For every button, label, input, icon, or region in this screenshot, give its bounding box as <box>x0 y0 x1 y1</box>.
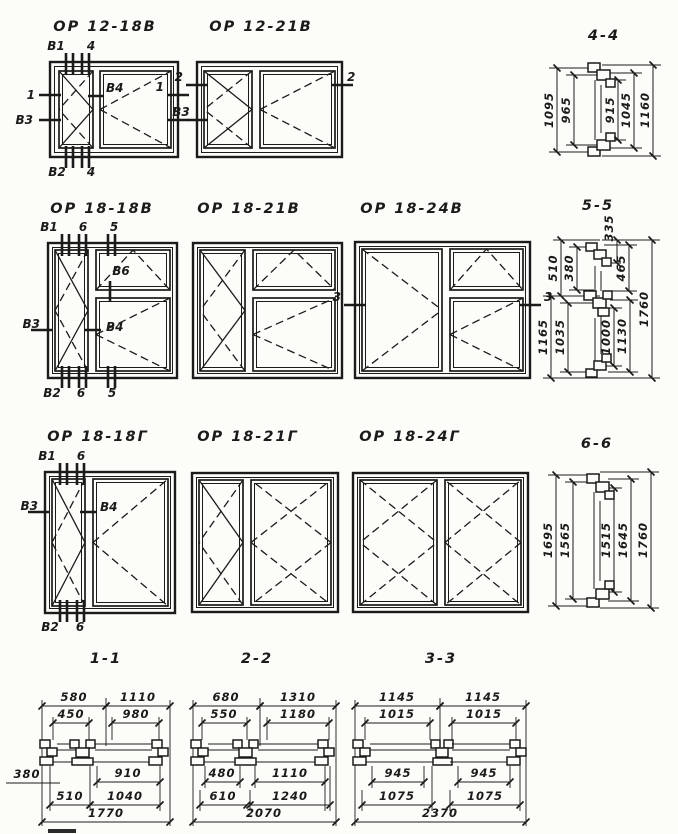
dim-label: 1110 <box>120 690 156 704</box>
window-title: ОР 12-21В <box>209 19 312 35</box>
mark-label: В1 <box>40 220 58 234</box>
window-frame <box>353 473 528 612</box>
window-frame <box>50 62 178 157</box>
section-2-2: 2-2 680 1310 550 1180 480 1110 610 1240 … <box>191 651 336 826</box>
mark-label: 5 <box>108 386 116 400</box>
dim-label: 1240 <box>272 789 308 803</box>
mark-label: В3 <box>16 113 34 127</box>
dim-label: 1180 <box>280 707 316 721</box>
dim-label: 915 <box>603 96 617 123</box>
dim-label: 1645 <box>616 522 630 558</box>
window-frame <box>192 473 338 612</box>
dim-label: 1565 <box>558 522 572 558</box>
dim-label: 980 <box>122 707 149 721</box>
dim-label: 910 <box>114 766 141 780</box>
opening-symbols <box>204 71 335 148</box>
mark-label: 4 <box>86 165 95 179</box>
dim-label: 510 <box>56 789 83 803</box>
window-or-12-21v: ОР 12-21В 2 2 <box>175 19 356 157</box>
mark-label: В3 <box>21 499 39 513</box>
dim-label: 2370 <box>422 806 458 820</box>
dim-label: 1165 <box>536 319 550 355</box>
section-title: 5-5 <box>582 198 614 214</box>
section-5-5: 5-5 335 510 380 465 1165 1035 1000 1130 … <box>536 198 660 378</box>
mark-label: В4 <box>100 500 118 514</box>
window-title: ОР 18-24В <box>360 201 463 217</box>
opening-symbols <box>200 250 335 371</box>
mark-label: В1 <box>38 449 56 463</box>
dim-label: 1145 <box>379 690 415 704</box>
dim-label: 380 <box>562 254 576 281</box>
window-title: ОР 18-18В <box>50 201 153 217</box>
mark-label: 6 <box>79 220 87 234</box>
window-title: ОР 18-24Г <box>359 429 461 445</box>
window-or-12-18v: ОР 12-18В В1 4 1 В3 1 В3 В2 4 В4 <box>16 19 190 179</box>
dim-label: 1015 <box>379 707 415 721</box>
window-frame <box>193 243 342 378</box>
dim-label: 965 <box>559 96 573 123</box>
mark-label: 1 <box>27 88 35 102</box>
dim-label: 550 <box>210 707 237 721</box>
window-types-drawing: ОР 12-18В В1 4 1 В3 1 В3 В2 4 В4 ОР 12-2… <box>0 0 678 834</box>
dim-label: 610 <box>209 789 236 803</box>
mark-label: 5 <box>110 220 118 234</box>
profiles <box>40 740 168 765</box>
section-title: 4-4 <box>587 28 620 44</box>
window-or-18-21g: ОР 18-21Г <box>192 429 338 612</box>
dim-label: 1695 <box>541 522 555 558</box>
mark-label: В3 <box>23 317 41 331</box>
dim-label: 680 <box>212 690 239 704</box>
window-frame <box>45 472 175 613</box>
mark-label: В2 <box>41 620 59 634</box>
section-title: 2-2 <box>241 651 273 667</box>
window-title: ОР 18-18Г <box>47 429 149 445</box>
section-title: 1-1 <box>90 651 122 667</box>
profiles <box>584 243 612 377</box>
dim-label: 1095 <box>542 92 556 128</box>
dim-label: 1310 <box>280 690 316 704</box>
dim-label: 1075 <box>467 789 503 803</box>
dim-label: 2070 <box>246 806 282 820</box>
dim-label: 1145 <box>465 690 501 704</box>
window-or-18-21v: ОР 18-21В <box>193 201 342 378</box>
section-4-4: 4-4 1095 965 915 1045 1160 <box>542 28 661 156</box>
section-3-3: 3-3 1145 1145 1015 1015 945 945 1075 107… <box>353 651 526 826</box>
dim-label: 510 <box>546 254 560 281</box>
window-or-18-24v: ОР 18-24В 3 3 <box>333 201 553 378</box>
dim-label: 1075 <box>379 789 415 803</box>
dim-label: 1110 <box>272 766 308 780</box>
section-ticks <box>31 234 115 388</box>
window-title: ОР 18-21В <box>197 201 300 217</box>
opening-symbols <box>360 480 521 605</box>
dim-label: 465 <box>614 254 628 282</box>
dim-label: 335 <box>602 214 616 241</box>
scan-artifact <box>48 829 76 833</box>
dim-label: 1515 <box>599 522 613 558</box>
dim-label: 1045 <box>619 92 633 128</box>
mark-label: В2 <box>43 386 61 400</box>
mark-label: В1 <box>47 39 65 53</box>
window-title: ОР 18-21Г <box>197 429 299 445</box>
mark-label: 3 <box>333 290 341 304</box>
mark-label: 6 <box>77 386 85 400</box>
dim-label: 1040 <box>107 789 143 803</box>
dim-label: 450 <box>56 707 84 721</box>
mark-label: 4 <box>86 39 95 53</box>
dim-label: 1760 <box>637 291 651 327</box>
mark-label: 1 <box>156 80 164 94</box>
opening-symbols <box>199 480 331 605</box>
dim-label: 945 <box>384 766 411 780</box>
dim-label: 945 <box>470 766 497 780</box>
dim-label: 1000 <box>599 319 613 355</box>
mark-label: В2 <box>48 165 66 179</box>
window-frame <box>197 62 342 157</box>
dim-label: 1770 <box>88 806 124 820</box>
dim-label: 1015 <box>466 707 502 721</box>
mark-label: 2 <box>175 70 183 84</box>
section-1-1: 1-1 580 1110 450 980 380 910 510 1040 17… <box>6 651 170 826</box>
mark-label: 6 <box>77 449 85 463</box>
profiles <box>191 740 334 765</box>
mark-label: В6 <box>112 264 130 278</box>
dim-label: 1760 <box>636 522 650 558</box>
section-title: 3-3 <box>425 651 457 667</box>
mark-label: В3 <box>172 105 190 119</box>
mark-label: В4 <box>106 81 124 95</box>
section-title: 6-6 <box>581 436 613 452</box>
blueprint-canvas: ОР 12-18В В1 4 1 В3 1 В3 В2 4 В4 ОР 12-2… <box>0 0 678 834</box>
window-frame <box>355 242 530 378</box>
section-6-6: 6-6 1695 1565 1515 1645 1760 <box>541 436 659 608</box>
dim-label: 580 <box>60 690 87 704</box>
window-or-18-18v: ОР 18-18В В1 6 5 В3 В4 В6 В2 6 5 <box>23 201 178 400</box>
window-or-18-18g: ОР 18-18Г В1 6 В3 В4 В2 6 <box>21 429 176 634</box>
dim-label: 1160 <box>638 92 652 128</box>
dim-label: 380 <box>13 767 40 781</box>
opening-symbols <box>52 479 168 606</box>
mark-label: 2 <box>347 70 355 84</box>
window-title: ОР 12-18В <box>53 19 156 35</box>
dim-label: 1035 <box>553 319 567 355</box>
mark-label: 6 <box>76 620 84 634</box>
profiles <box>353 740 526 765</box>
dim-label: 480 <box>207 766 235 780</box>
window-or-18-24g: ОР 18-24Г <box>353 429 528 612</box>
mark-label: В4 <box>106 320 124 334</box>
dim-label: 1130 <box>615 318 629 354</box>
